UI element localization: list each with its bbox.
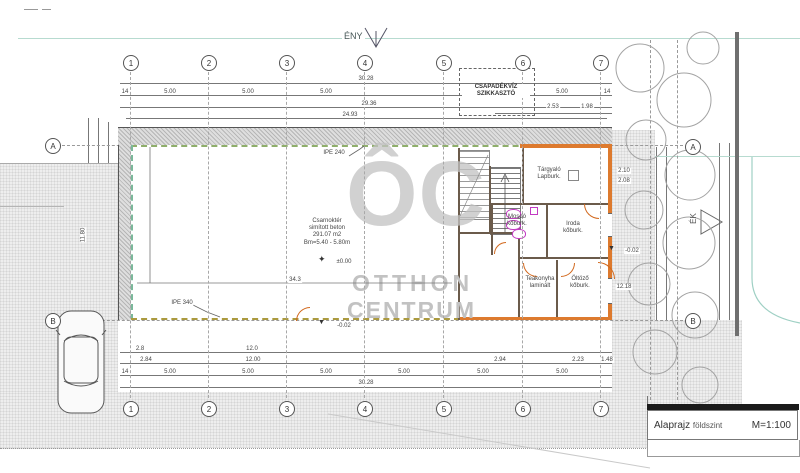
window-east-lower <box>608 278 612 304</box>
room-label-office: Iroda kőburk. <box>563 221 583 235</box>
dim-bottom-pre2: 12.0 <box>245 346 259 352</box>
grid-bubble-a-left: A <box>45 138 61 154</box>
level-minus-center-label: -0.02 <box>336 323 352 329</box>
pavement-edge-line <box>0 206 64 207</box>
room-name: Teakonyha <box>525 276 554 283</box>
pavement-bottom <box>0 392 742 448</box>
grid-bubble-b-right: B <box>685 313 701 329</box>
room-finish: simított beton <box>304 225 350 232</box>
grid-number: 6 <box>521 59 525 68</box>
site-line-right <box>630 156 800 157</box>
dim-top-end: 14 <box>603 89 612 95</box>
tree-icon <box>657 73 711 127</box>
dim-top-bay: 5.00 <box>241 89 255 95</box>
grid-letter: B <box>690 317 695 326</box>
dim-top-end: 14 <box>121 89 130 95</box>
dim-line-v <box>656 147 657 320</box>
grid-bubble-6-bottom: 6 <box>515 401 531 417</box>
dim-top-bay: 5.00 <box>555 89 569 95</box>
site-contour-line <box>752 157 800 323</box>
grid-bubble-4-bottom: 4 <box>357 401 373 417</box>
dim-bottom-seg3: 2.94 <box>493 357 507 363</box>
grid-bubble-a-right: A <box>685 139 701 155</box>
grid-bubble-b-left: B <box>45 313 61 329</box>
grid-line-3 <box>286 72 287 398</box>
dim-line <box>120 363 612 364</box>
room-name: Öltöző <box>570 276 590 283</box>
dim-window2: 1.98 <box>580 104 594 110</box>
grid-bubble-3-top: 3 <box>279 55 295 71</box>
grid-number: 5 <box>442 405 446 414</box>
dim-top-sub2: 24.93 <box>341 112 358 118</box>
tree-icon <box>687 32 719 64</box>
tree-icon <box>663 217 715 269</box>
level-marker-icon: ✦ <box>318 254 326 265</box>
room-name: Csarnoktér <box>304 218 350 225</box>
dim-line <box>120 95 612 96</box>
room-name: Iroda <box>563 221 583 228</box>
room-label-meeting: Tárgyaló Lapburk. <box>537 167 560 181</box>
room-height: Bm=5.40 - 5.80m <box>304 240 350 247</box>
infiltrator-line2: SZIKKASZTÓ <box>462 91 530 98</box>
room-name: Mosdó <box>507 214 527 221</box>
grid-number: 4 <box>363 405 367 414</box>
dim-bottom-end: 14 <box>121 369 130 375</box>
grid-number: 6 <box>521 405 525 414</box>
dim-line-v <box>666 147 667 320</box>
grid-bubble-1-top: 1 <box>123 55 139 71</box>
dim-bottom-bay: 5.00 <box>397 369 411 375</box>
dim-hall-inner: 34.3 <box>288 277 302 283</box>
terrace-right <box>612 130 655 320</box>
grid-number: 3 <box>285 59 289 68</box>
grid-line-6 <box>522 72 523 398</box>
grid-number: 2 <box>207 59 211 68</box>
boundary-wall-bar <box>735 32 739 336</box>
watermark-name-2: CENTRUM <box>347 297 476 324</box>
dim-top-bay: 5.00 <box>319 89 333 95</box>
dim-line <box>120 83 612 84</box>
drawing-title-sub: földszint <box>693 421 722 430</box>
watermark-logo: ÔC <box>346 148 486 240</box>
grid-number: 1 <box>129 405 133 414</box>
survey-mark <box>24 9 38 10</box>
level-arrow-icon: ▼ <box>608 245 615 252</box>
survey-mark <box>42 9 51 10</box>
dim-right-window-upper: 2.10 <box>617 168 631 174</box>
grid-number: 7 <box>599 405 603 414</box>
grid-number: 2 <box>207 405 211 414</box>
dim-line <box>120 352 612 353</box>
grid-bubble-1-bottom: 1 <box>123 401 139 417</box>
wc-fixture-icon <box>512 229 526 239</box>
beam-label-top: IPE 240 <box>322 150 345 156</box>
table-symbol <box>568 170 579 181</box>
grid-number: 7 <box>599 59 603 68</box>
grid-letter: A <box>690 143 695 152</box>
partition-corridor <box>518 234 520 318</box>
grid-bubble-3-bottom: 3 <box>279 401 295 417</box>
north-label-top: ÉNY <box>342 31 365 41</box>
dim-right-side: 12.18 <box>615 284 632 290</box>
dim-line <box>120 387 612 388</box>
dim-bottom-bay: 5.00 <box>555 369 569 375</box>
grid-bubble-2-bottom: 2 <box>201 401 217 417</box>
dim-bottom-seg2: 12.00 <box>244 357 261 363</box>
grid-line-7 <box>600 72 601 398</box>
dim-line <box>120 375 612 376</box>
dim-line <box>120 107 612 108</box>
floor-plan-canvas: 30.28 14 5.00 5.00 5.00 5.00 14 29.36 24… <box>0 0 800 473</box>
grid-bubble-2-top: 2 <box>201 55 217 71</box>
dim-top-overall: 30.28 <box>357 76 374 82</box>
window-east-upper <box>608 213 612 237</box>
room-finish: kőburk. <box>570 283 590 290</box>
title-block-empty-row <box>647 440 800 457</box>
site-boundary-dotted <box>0 448 742 449</box>
partition <box>556 260 558 318</box>
dim-bottom-bay: 5.00 <box>319 369 333 375</box>
dim-line-v <box>719 143 720 335</box>
dim-bottom-bay: 5.00 <box>476 369 490 375</box>
grid-bubble-7-bottom: 7 <box>593 401 609 417</box>
dim-window1: 2.53 <box>546 104 560 110</box>
drawing-title-main: Alaprajz <box>654 420 690 431</box>
room-finish: kőburk. <box>507 221 527 228</box>
room-area: 291.07 m2 <box>304 232 350 239</box>
partition <box>518 257 610 259</box>
level-zero-label: ±0.00 <box>336 259 353 265</box>
grid-number: 3 <box>285 405 289 414</box>
grid-line-5 <box>443 72 444 398</box>
north-label-right: ÉK <box>689 213 698 224</box>
room-label-washroom: Mosdó kőburk. <box>507 214 527 228</box>
beam-label-bottom: IPE 340 <box>170 300 193 306</box>
room-name: Tárgyaló <box>537 167 560 174</box>
grid-number: 4 <box>363 59 367 68</box>
room-label-hall: Csarnoktér simított beton 291.07 m2 Bm=5… <box>304 218 350 247</box>
room-finish: Lapburk. <box>537 174 560 181</box>
grid-letter: A <box>50 142 55 151</box>
dim-bottom-seg1: 2.84 <box>139 357 153 363</box>
site-line-top <box>18 38 800 39</box>
wall-office-bottom-orange <box>460 317 612 320</box>
level-arrow-icon: ▼ <box>318 319 325 326</box>
grid-line-2 <box>208 72 209 398</box>
dim-bottom-bay: 5.00 <box>241 369 255 375</box>
grid-bubble-7-top: 7 <box>593 55 609 71</box>
dim-line-v <box>729 143 730 335</box>
grid-bubble-5-bottom: 5 <box>436 401 452 417</box>
dim-left-overall: 11.80 <box>80 228 86 243</box>
dim-bottom-pre1: 2.8 <box>135 346 145 352</box>
dim-top-bay: 5.00 <box>163 89 177 95</box>
boundary-dashed <box>650 40 651 400</box>
dim-line <box>126 118 607 119</box>
dim-bottom-seg4: 2.23 <box>571 357 585 363</box>
grid-line-1 <box>130 72 131 398</box>
room-finish: kőburk. <box>563 228 583 235</box>
tree-icon <box>616 44 664 92</box>
facade-dash-left <box>131 145 133 320</box>
drawing-title: Alaprajz földszint <box>654 420 722 431</box>
grid-bubble-4-top: 4 <box>357 55 373 71</box>
grid-bubble-6-top: 6 <box>515 55 531 71</box>
grid-letter: B <box>50 317 55 326</box>
grid-number: 5 <box>442 59 446 68</box>
drawing-scale: M=1:100 <box>752 420 791 431</box>
grid-number: 1 <box>129 59 133 68</box>
infiltrator-label: CSAPADÉKVÍZ SZIKKASZTÓ <box>462 84 530 98</box>
dim-bottom-seg5: 1.48 <box>600 357 614 363</box>
boundary-dashed <box>677 40 678 400</box>
watermark-name-1: OTTHON <box>352 270 473 297</box>
tree-icon <box>665 150 715 200</box>
dim-right-window-lower: 2.08 <box>617 178 631 184</box>
dim-bottom-bay: 5.00 <box>163 369 177 375</box>
partition <box>546 205 548 258</box>
partition <box>491 203 493 255</box>
grid-bubble-5-top: 5 <box>436 55 452 71</box>
dim-top-sub1: 29.36 <box>360 101 377 107</box>
room-label-dressing: Öltöző kőburk. <box>570 276 590 290</box>
grid-line-4 <box>364 72 365 398</box>
room-finish: laminált <box>525 283 554 290</box>
room-label-teakitchen: Teakonyha laminált <box>525 276 554 290</box>
title-block: Alaprajz földszint M=1:100 <box>647 410 798 440</box>
wall-office-top-orange <box>520 144 612 148</box>
dim-bottom-overall: 30.28 <box>357 380 374 386</box>
sink-icon <box>530 207 538 215</box>
level-minus-right-label: -0.02 <box>624 248 640 254</box>
